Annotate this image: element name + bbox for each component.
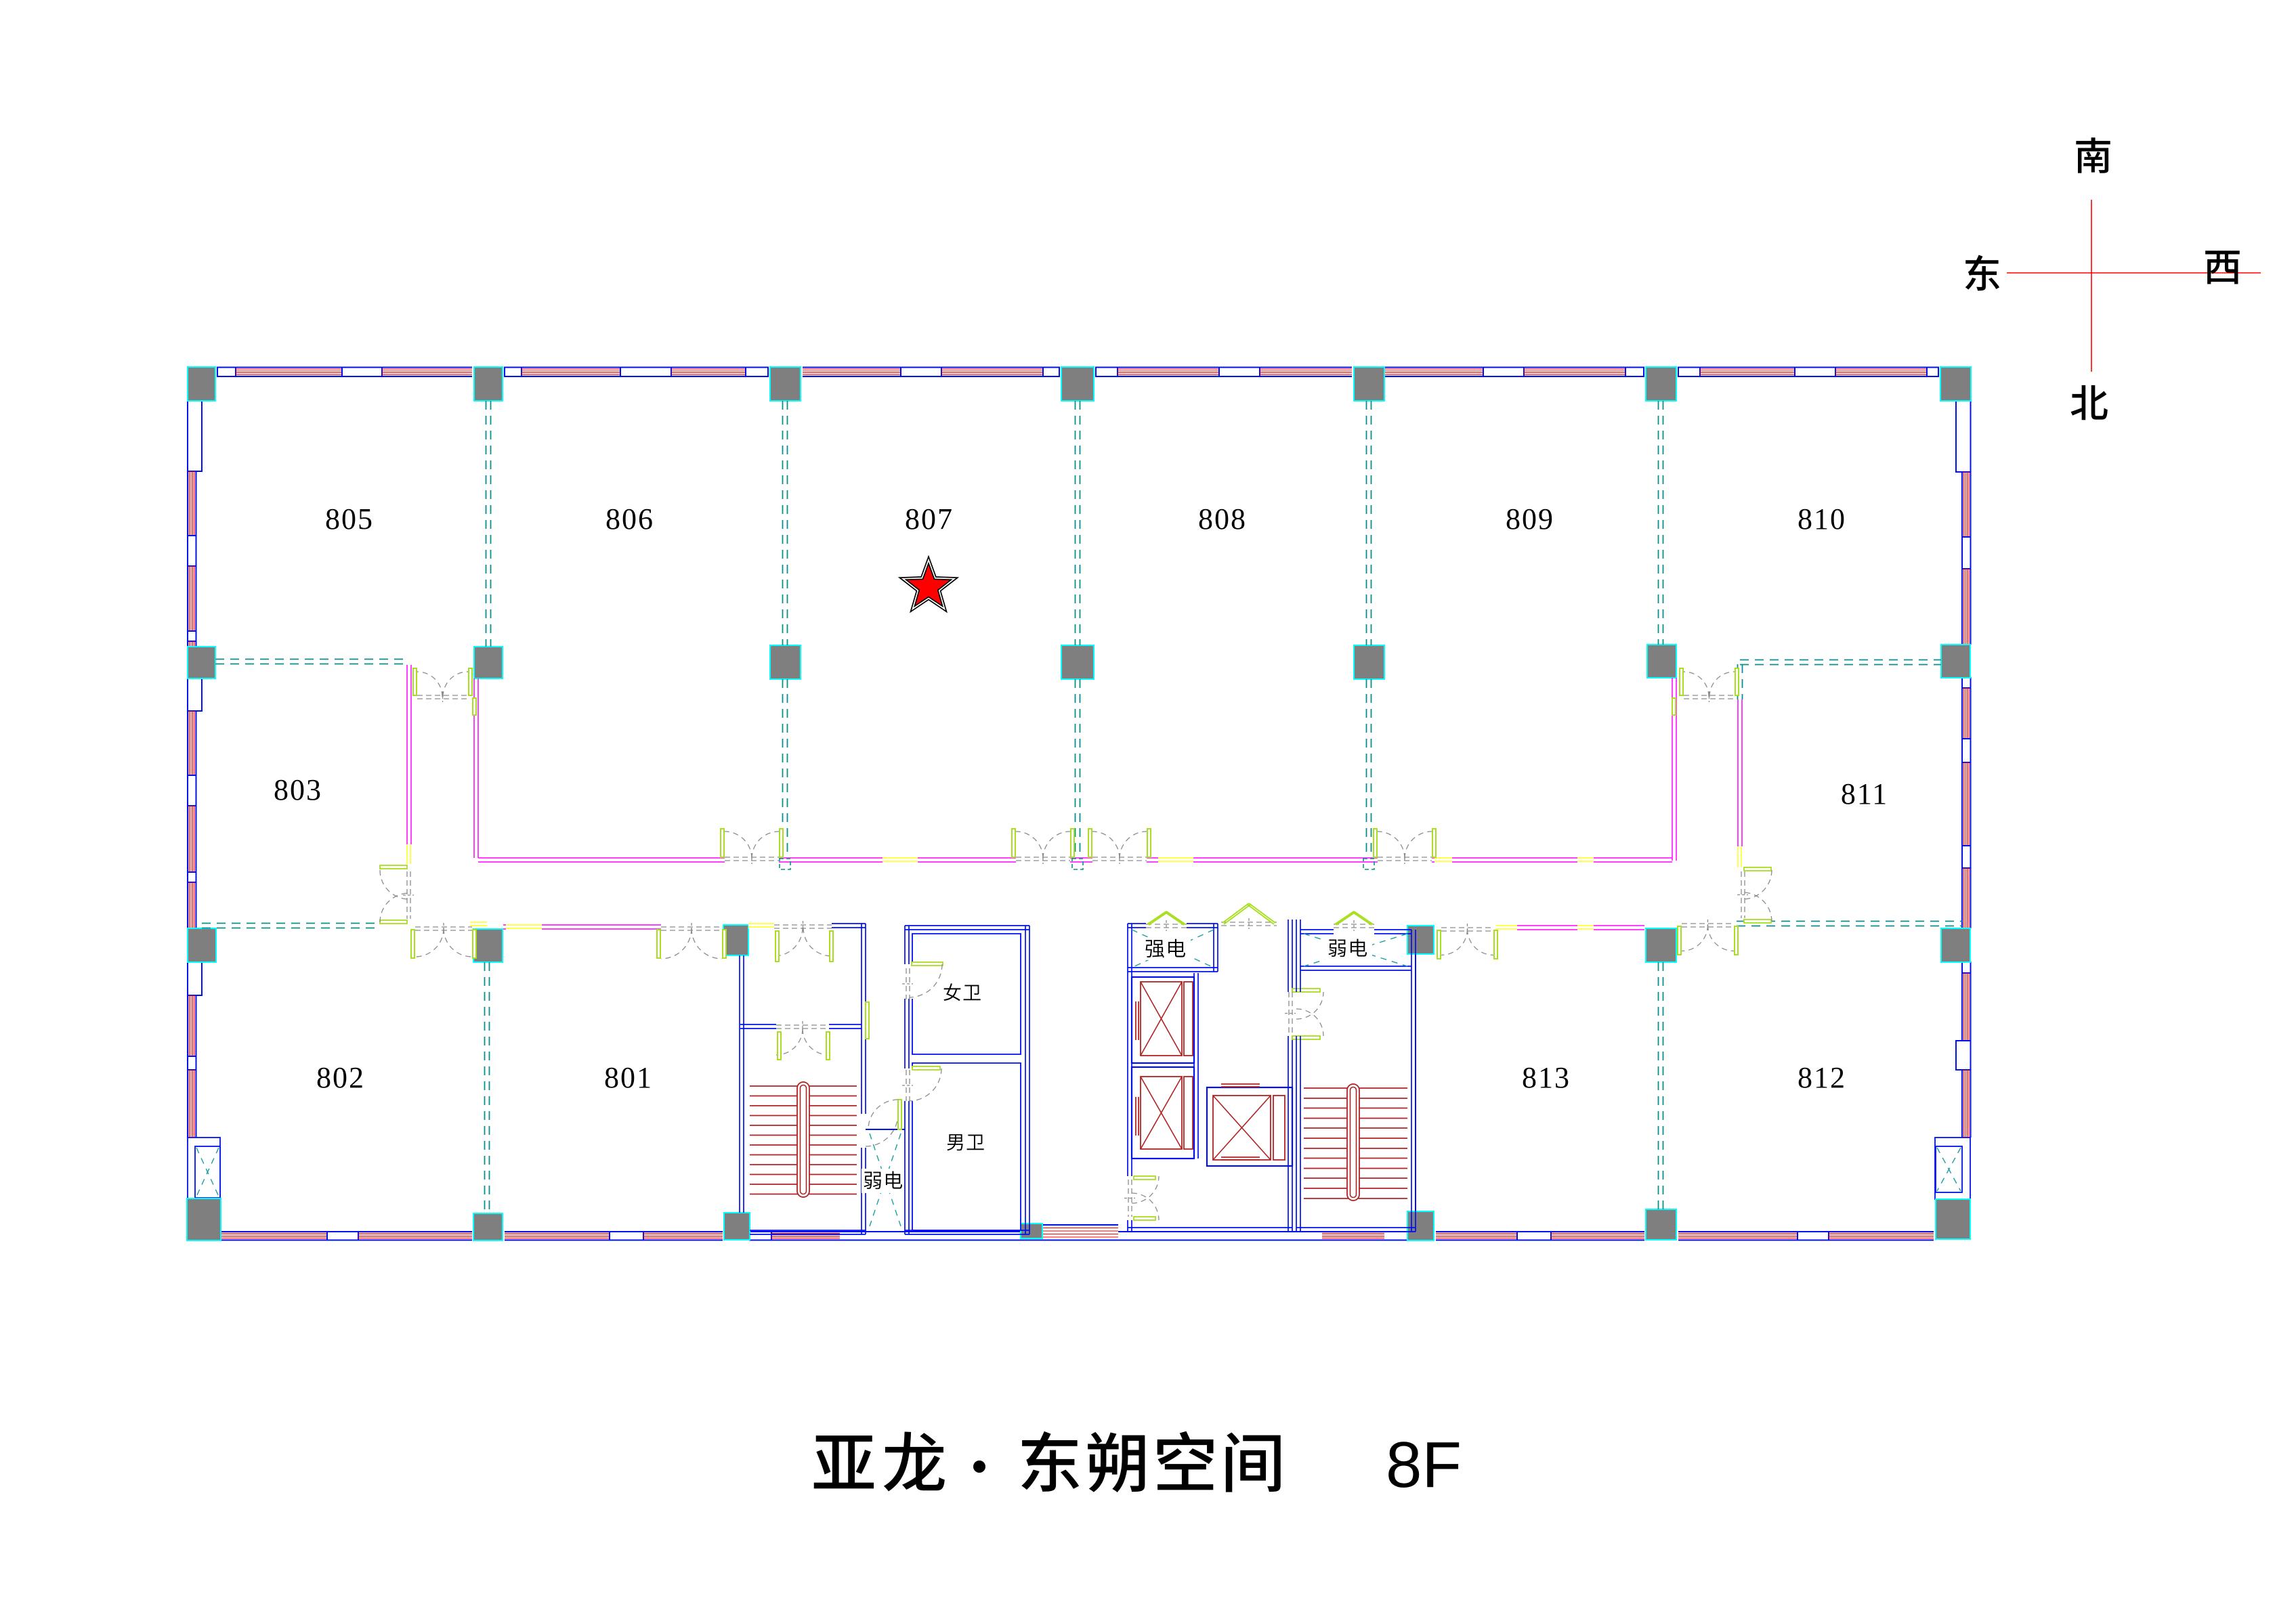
svg-text:8F: 8F bbox=[1386, 1429, 1462, 1501]
svg-text:806: 806 bbox=[605, 502, 654, 536]
svg-text:809: 809 bbox=[1506, 502, 1554, 536]
svg-text:805: 805 bbox=[325, 502, 374, 536]
svg-text:812: 812 bbox=[1798, 1061, 1846, 1094]
svg-text:808: 808 bbox=[1198, 502, 1247, 536]
svg-text:813: 813 bbox=[1522, 1061, 1571, 1094]
svg-text:811: 811 bbox=[1841, 777, 1888, 810]
svg-text:807: 807 bbox=[905, 502, 954, 536]
svg-text:801: 801 bbox=[604, 1061, 653, 1094]
svg-text:803: 803 bbox=[274, 773, 322, 806]
svg-text:810: 810 bbox=[1798, 502, 1846, 536]
svg-text:802: 802 bbox=[316, 1061, 365, 1094]
